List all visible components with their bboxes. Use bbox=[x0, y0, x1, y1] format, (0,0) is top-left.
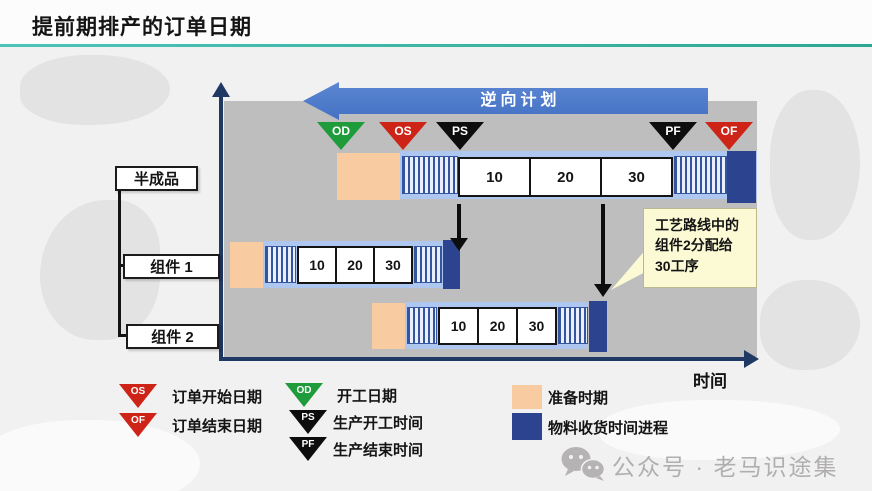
x-axis-line bbox=[219, 357, 746, 361]
row2-hatch-right bbox=[414, 246, 442, 283]
x-axis-arrowhead bbox=[744, 350, 759, 368]
op-box: 20 bbox=[335, 246, 375, 284]
row3-material-block bbox=[589, 301, 607, 352]
x-axis-label: 时间 bbox=[693, 367, 727, 392]
row-label-component1: 组件 1 bbox=[123, 254, 220, 279]
row2-prep-block bbox=[230, 242, 263, 288]
row3-hatch-right bbox=[558, 307, 588, 344]
row3-operations: 10 20 30 bbox=[438, 307, 557, 345]
op-box: 10 bbox=[458, 157, 531, 197]
row2-hatch-left bbox=[265, 246, 296, 283]
op-box: 10 bbox=[438, 307, 479, 345]
lead-time-diagram: 时间 逆向计划 OD OS PS PF OF 半成品 组件 1 组件 2 10 … bbox=[0, 0, 872, 491]
row1-material-block bbox=[727, 151, 756, 203]
bracket-line bbox=[118, 189, 121, 337]
op-box: 30 bbox=[516, 307, 557, 345]
dependency-arrow-1-head bbox=[450, 238, 468, 251]
op-box: 30 bbox=[600, 157, 673, 197]
row1-operations: 10 20 30 bbox=[458, 157, 673, 197]
dependency-arrow-1 bbox=[457, 204, 461, 238]
row-label-semifinished: 半成品 bbox=[115, 166, 198, 191]
routing-callout: 工艺路线中的组件2分配给30工序 bbox=[643, 208, 757, 288]
row3-hatch-left bbox=[407, 307, 437, 344]
page-title: 提前期排产的订单日期 bbox=[32, 11, 252, 41]
op-box: 10 bbox=[297, 246, 337, 284]
row1-hatch-right bbox=[674, 156, 727, 194]
row-label-component2: 组件 2 bbox=[126, 324, 219, 349]
row1-hatch-left bbox=[402, 156, 458, 194]
row3-prep-block bbox=[372, 303, 405, 349]
dependency-arrow-2 bbox=[601, 204, 605, 284]
y-axis-line bbox=[219, 96, 223, 357]
dependency-arrow-2-head bbox=[594, 284, 612, 297]
slide-header: 提前期排产的订单日期 bbox=[0, 0, 872, 44]
y-axis-arrowhead bbox=[212, 82, 230, 97]
op-box: 20 bbox=[477, 307, 518, 345]
row2-operations: 10 20 30 bbox=[297, 246, 413, 284]
row1-prep-block bbox=[337, 153, 400, 200]
op-box: 30 bbox=[373, 246, 413, 284]
op-box: 20 bbox=[529, 157, 602, 197]
title-divider bbox=[0, 44, 872, 47]
